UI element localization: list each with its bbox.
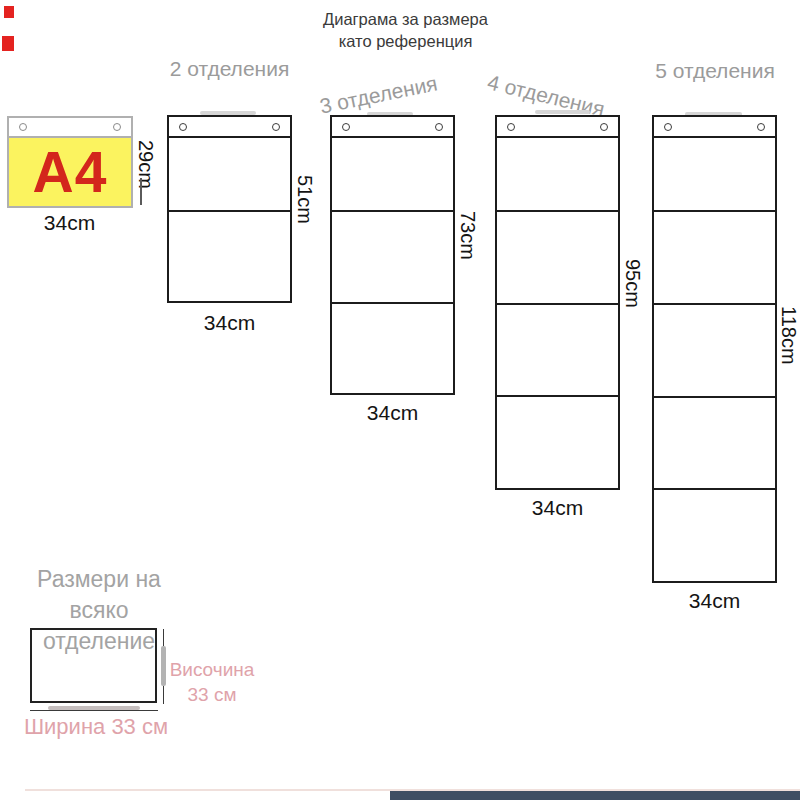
a4-height-label: 29cm <box>134 140 157 189</box>
a4-label: A4 <box>33 144 108 201</box>
height-label-5-compartments: 118cm <box>777 306 800 365</box>
compartment-cell <box>332 302 453 394</box>
compartment-cell <box>654 396 775 489</box>
detail-heading: Размери на всяко отделение <box>28 564 170 657</box>
height-label-3-compartments: 73cm <box>456 211 479 260</box>
grommet-hole-icon <box>179 123 187 131</box>
a4-paper: A4 <box>9 138 131 206</box>
smudge-artifact <box>535 110 590 114</box>
width-label-3-compartments: 34cm <box>330 401 455 425</box>
grommet-hole-icon <box>19 123 27 131</box>
compartment-cell <box>169 138 290 210</box>
a4-width-label: 34cm <box>7 211 132 235</box>
organizer-2-compartments <box>167 115 292 303</box>
height-label-4-compartments: 95cm <box>621 259 644 308</box>
grommet-hole-icon <box>507 123 515 131</box>
organizer-header-strip <box>169 117 290 138</box>
size-reference-diagram: Диаграма за размера като референция 2 от… <box>0 0 800 800</box>
column-label-5-compartments: 5 отделения <box>640 59 790 83</box>
grommet-hole-icon <box>342 123 350 131</box>
page-title: Диаграма за размера като референция <box>248 8 563 53</box>
organizer-5-compartments <box>652 115 777 583</box>
compartment-cell <box>169 210 290 301</box>
width-label-2-compartments: 34cm <box>167 311 292 335</box>
compartment-cell <box>497 210 618 303</box>
compartment-cell <box>497 138 618 210</box>
compartment-cell <box>497 395 618 488</box>
width-label-5-compartments: 34cm <box>652 589 777 613</box>
dimension-line-horizontal <box>30 710 158 711</box>
column-label-2-compartments: 2 отделения <box>152 57 307 81</box>
a4-header-strip <box>9 118 131 138</box>
compartment-cell <box>654 210 775 303</box>
compartment-cell <box>654 138 775 210</box>
red-edge-artifact <box>2 36 14 51</box>
detail-width-label: Ширина 33 см <box>20 714 172 740</box>
dimension-tick <box>140 178 142 205</box>
grommet-hole-icon <box>272 123 280 131</box>
compartment-cell <box>654 303 775 396</box>
compartment-cell <box>332 138 453 210</box>
compartments <box>169 138 290 301</box>
organizer-3-compartments <box>330 115 455 395</box>
page-title-line2: като референция <box>248 30 563 52</box>
bottom-bar-artifact <box>390 791 800 800</box>
compartments <box>332 138 453 393</box>
height-label-2-compartments: 51cm <box>293 175 316 224</box>
grommet-hole-icon <box>113 123 121 131</box>
a4-reference: A4 <box>7 116 133 208</box>
compartments <box>654 138 775 581</box>
organizer-header-strip <box>332 117 453 138</box>
compartment-cell <box>654 488 775 581</box>
grommet-hole-icon <box>600 123 608 131</box>
compartment-cell <box>332 210 453 302</box>
compartments <box>497 138 618 488</box>
organizer-header-strip <box>654 117 775 138</box>
grommet-hole-icon <box>757 123 765 131</box>
page-title-line1: Диаграма за размера <box>248 8 563 30</box>
red-edge-artifact <box>4 6 14 18</box>
organizer-header-strip <box>497 117 618 138</box>
grommet-hole-icon <box>664 123 672 131</box>
dimension-line-horizontal-highlight <box>48 706 140 710</box>
compartment-cell <box>497 303 618 396</box>
detail-height-label: Височина 33 см <box>167 658 257 707</box>
organizer-4-compartments <box>495 115 620 490</box>
grommet-hole-icon <box>435 123 443 131</box>
width-label-4-compartments: 34cm <box>495 496 620 520</box>
